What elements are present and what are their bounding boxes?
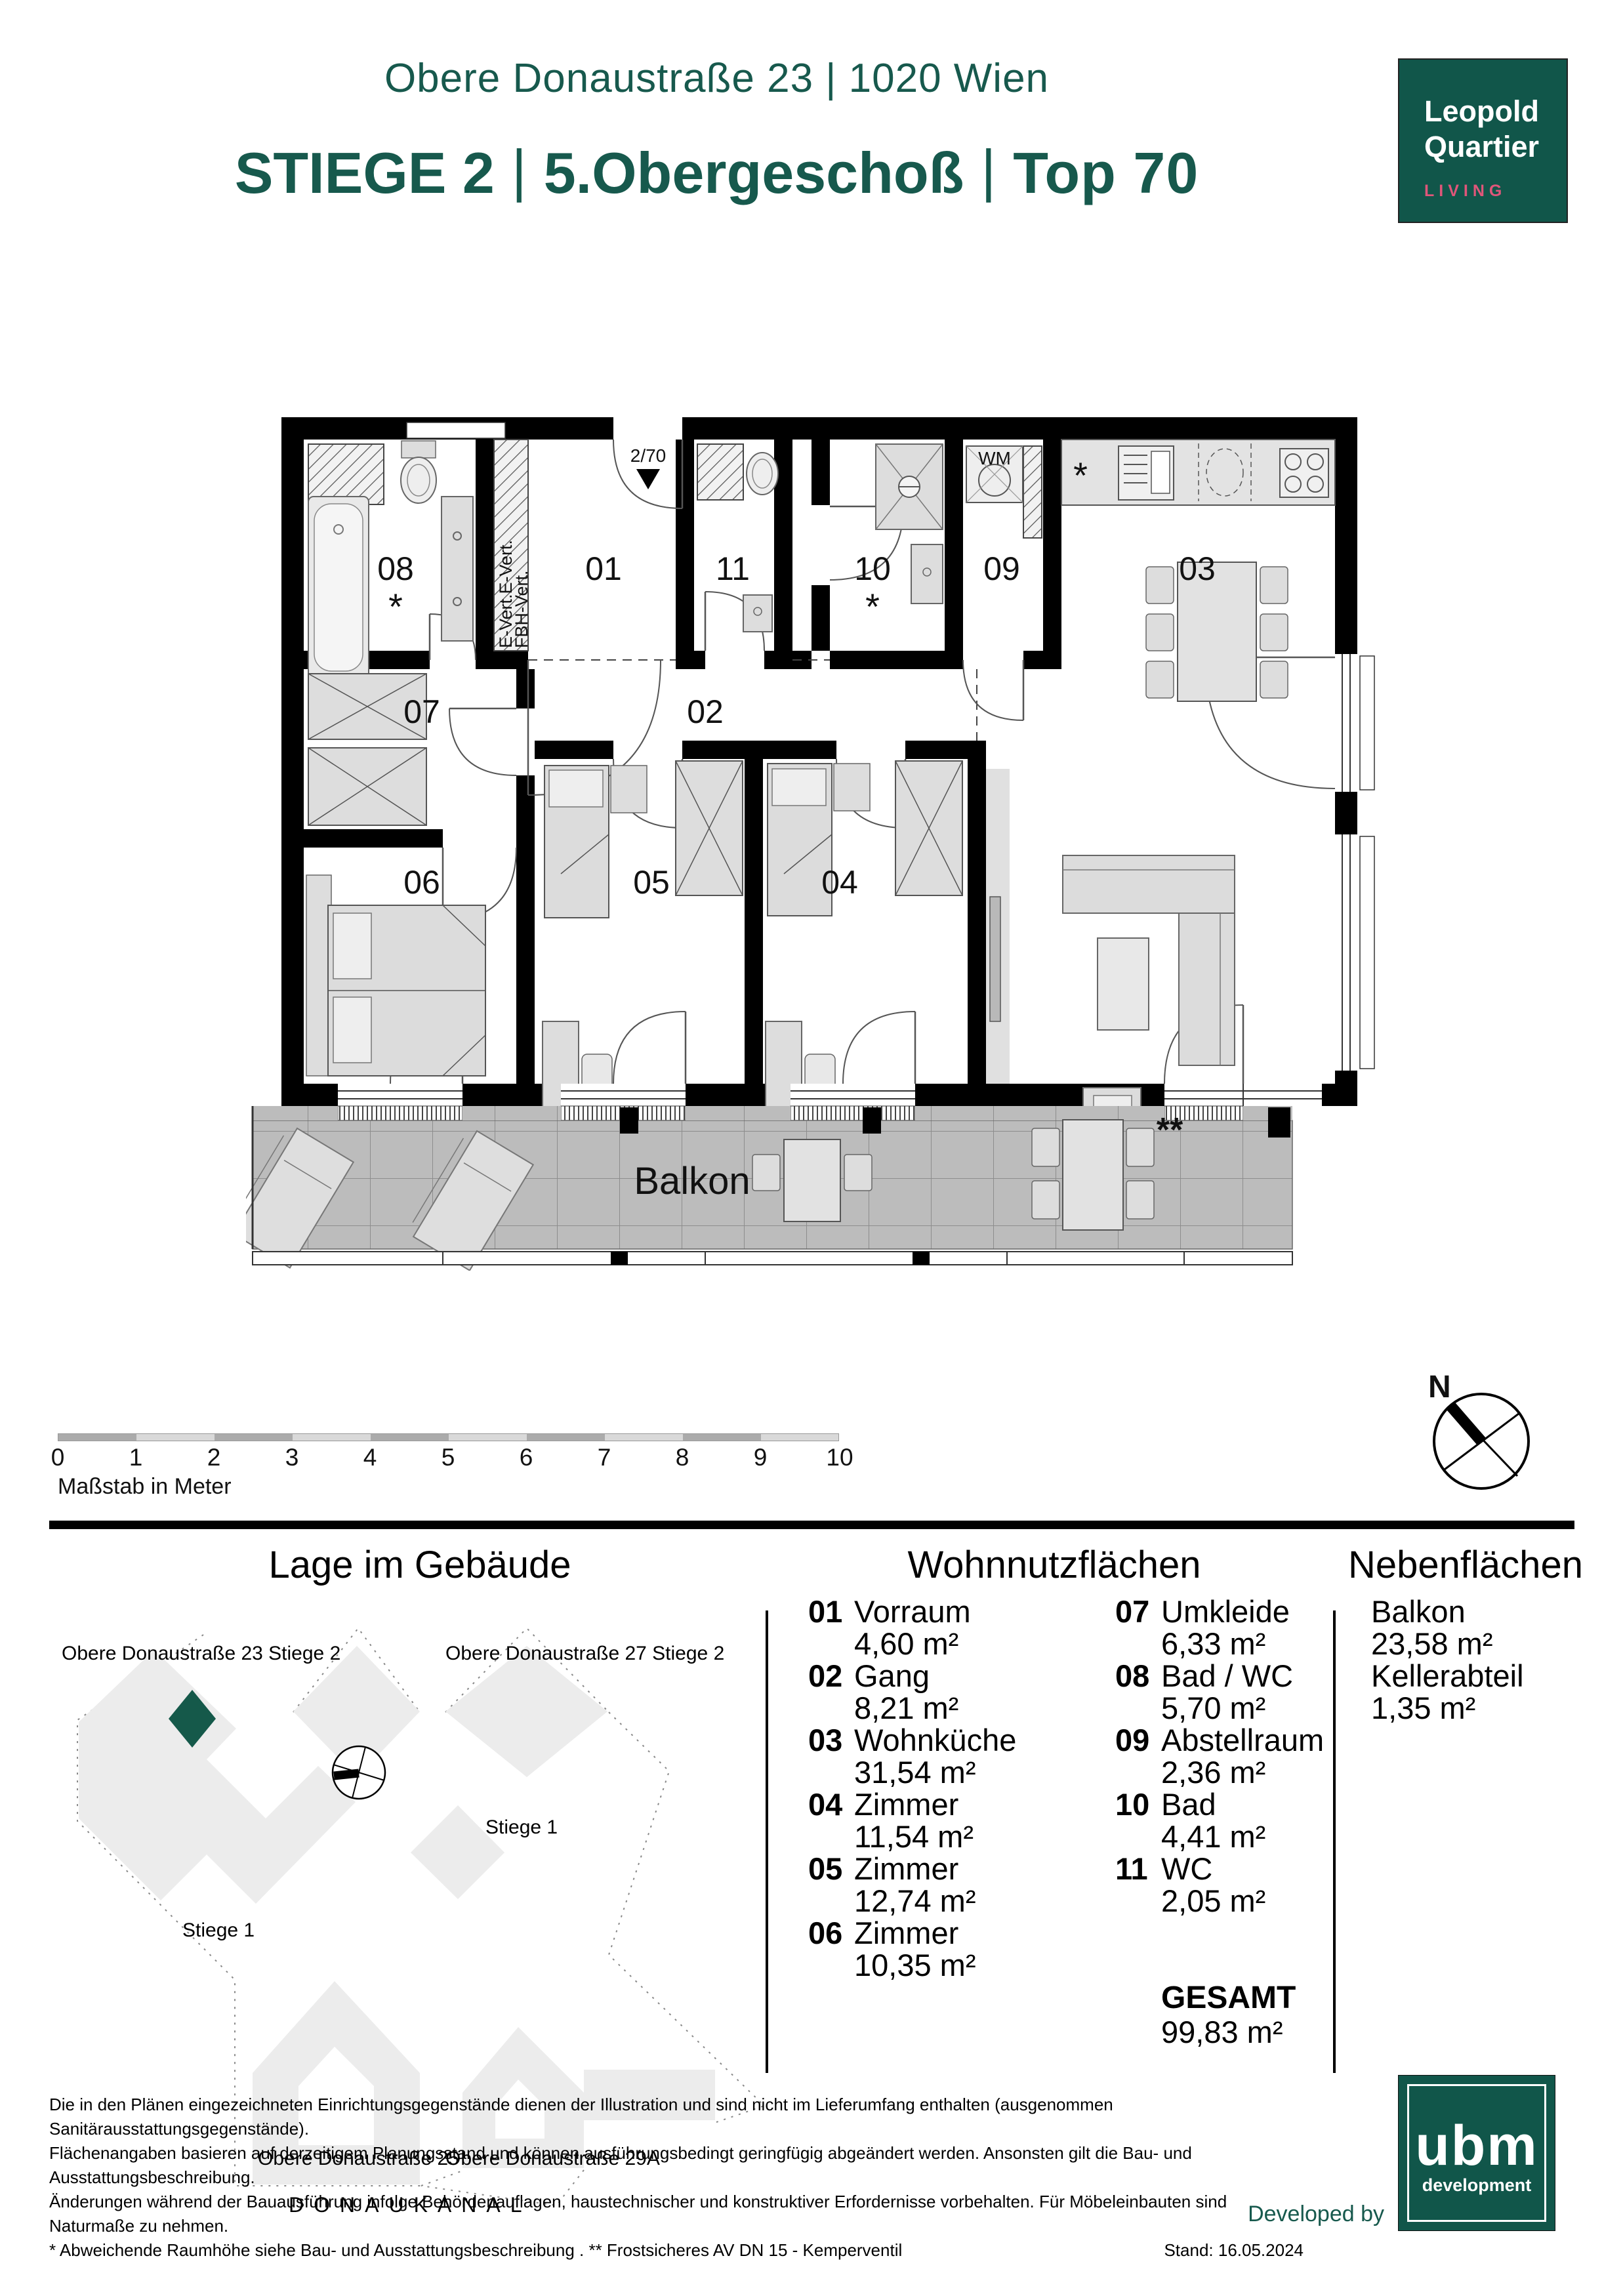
room-num: 11 [1115, 1853, 1161, 1885]
room-area: 5,70 m² [1115, 1692, 1332, 1724]
site-title: Lage im Gebäude [131, 1543, 709, 1587]
column-divider [1333, 1610, 1336, 2073]
room-num: 07 [1115, 1595, 1161, 1628]
room-num: 06 [808, 1917, 854, 1949]
room-name: Wohnküche [854, 1724, 1016, 1756]
total-value: 99,83 m² [1161, 2015, 1296, 2049]
site-label-stiege1-left: Stiege 1 [182, 1919, 255, 1941]
disclaimer-line4: * Abweichende Raumhöhe siehe Bau- und Au… [49, 2238, 902, 2263]
scale-label: Maßstab in Meter [58, 1474, 232, 1500]
room-name: Vorraum [854, 1595, 971, 1628]
site-label-23: Obere Donaustraße 23 Stiege 2 [62, 1643, 340, 1664]
balcony-label: Balkon [634, 1160, 750, 1202]
balcony-table [784, 1139, 840, 1221]
double-star-marker: ** [1157, 1111, 1183, 1149]
toilet-cistern [401, 441, 436, 458]
room-num: 09 [1115, 1724, 1161, 1756]
room-num: 04 [808, 1788, 854, 1820]
room-label-05: 05 [633, 864, 670, 901]
scale-tick: 6 [512, 1444, 541, 1471]
room-area: 12,74 m² [808, 1885, 1084, 1917]
room-label-02: 02 [687, 693, 724, 730]
opening-dashes [528, 660, 977, 741]
room-label-04: 04 [821, 864, 858, 901]
areas-column-2: 07Umkleide 6,33 m² 08Bad / WC 5,70 m² 09… [1115, 1595, 1332, 1917]
areas-column-1: 01Vorraum 4,60 m² 02Gang 8,21 m² 03Wohnk… [808, 1595, 1084, 1981]
room-06-furniture [306, 875, 485, 1076]
room-num: 03 [808, 1724, 854, 1756]
room-area: 10,35 m² [808, 1949, 1084, 1981]
coffee-table [1098, 938, 1149, 1030]
areas-title: Wohnnutzflächen [787, 1543, 1321, 1587]
room-area: 4,60 m² [808, 1628, 1084, 1660]
room-label-11: 11 [716, 550, 750, 587]
room-area: 4,41 m² [1115, 1820, 1332, 1853]
disclaimer-line3: Änderungen während der Bauausführung inf… [49, 2190, 1304, 2238]
brand-line2: Quartier [1424, 129, 1567, 165]
kitchen-counter: * [1061, 440, 1335, 505]
scale-tick: 2 [199, 1444, 228, 1471]
wall-niche [407, 422, 505, 438]
disclaimer-line2: Flächenangaben basieren auf derzeitigem … [49, 2141, 1304, 2190]
leopold-quartier-logo: Leopold Quartier LIVING [1398, 58, 1568, 223]
disclaimer: Die in den Plänen eingezeichneten Einric… [49, 2093, 1304, 2263]
room-area: 31,54 m² [808, 1756, 1084, 1788]
developed-by-label: Developed by [1181, 2202, 1384, 2227]
room-name: Bad [1161, 1788, 1216, 1820]
brand-line1: Leopold [1424, 94, 1567, 129]
balcony: Balkon ** [246, 1106, 1292, 1271]
north-compass: N [1397, 1351, 1574, 1535]
separator: | [964, 138, 1013, 203]
north-label: N [1428, 1370, 1451, 1404]
top-number-label: Top 70 [1013, 140, 1199, 205]
room-area: 6,33 m² [1115, 1628, 1332, 1660]
building-23 [79, 1650, 356, 1904]
room-05-furniture [543, 761, 743, 1134]
scale-tick: 0 [43, 1444, 72, 1471]
balcony-table [1063, 1120, 1123, 1230]
secondary-areas: Balkon 23,58 m² Kellerabteil 1,35 m² [1371, 1595, 1594, 1724]
building-27 [445, 1646, 607, 1777]
ubm-sub: development [1409, 2175, 1544, 2196]
nightstand [834, 764, 870, 811]
room-label-03: 03 [1179, 550, 1216, 587]
entrance-number: 2/70 [630, 445, 667, 466]
site-compass [333, 1746, 385, 1799]
sofa [1063, 855, 1235, 913]
scale-tick: 10 [825, 1444, 854, 1471]
room-name: Zimmer [854, 1917, 958, 1949]
room-label-08: 08 [377, 550, 414, 587]
scale-tick: 7 [590, 1444, 619, 1471]
kitchen-star: * [1073, 455, 1088, 496]
room-area: 2,36 m² [1115, 1756, 1332, 1788]
total-area: GESAMT 99,83 m² [1161, 1981, 1296, 2049]
wm-label: WM [978, 448, 1011, 468]
unit-title: STIEGE 2|5.Obergeschoß|Top 70 [0, 140, 1433, 207]
ubm-logo: ubm development [1398, 2075, 1555, 2231]
shaft-hatch [697, 444, 743, 500]
room-04-furniture [766, 761, 962, 1134]
secondary-name: Balkon [1371, 1595, 1594, 1628]
room-name: WC [1161, 1853, 1212, 1885]
room-label-06: 06 [403, 864, 440, 901]
entrance-arrow-icon [636, 469, 660, 489]
room-num: 02 [808, 1660, 854, 1692]
secondary-name: Kellerabteil [1371, 1660, 1594, 1692]
scale-tick: 3 [277, 1444, 306, 1471]
room-label-10: 10 [854, 550, 891, 587]
floor-label: 5.Obergeschoß [544, 140, 964, 205]
entrance-door: 2/70 [613, 440, 682, 508]
room-num: 05 [808, 1853, 854, 1885]
address-title: Obere Donaustraße 23 | 1020 Wien [0, 55, 1433, 102]
room-label-01: 01 [585, 550, 622, 587]
room-name: Umkleide [1161, 1595, 1290, 1628]
room-area: 11,54 m² [808, 1820, 1084, 1853]
room-label-09: 09 [983, 550, 1020, 587]
room-star-10: * [865, 586, 880, 627]
disclaimer-line1: Die in den Plänen eingezeichneten Einric… [49, 2093, 1304, 2141]
wc-11-fixtures [743, 453, 778, 632]
secondary-title: Nebenflächen [1334, 1543, 1597, 1587]
washbasin [911, 544, 943, 604]
scale-tick: 5 [434, 1444, 462, 1471]
room-name: Zimmer [854, 1853, 958, 1885]
installation-shaft: E-Vert.E-Vert. FBH-Vert. [494, 440, 531, 651]
shaft-label-2: FBH-Vert. [512, 570, 531, 648]
secondary-area: 23,58 m² [1371, 1628, 1594, 1660]
floorplan-sheet: Obere Donaustraße 23 | 1020 Wien STIEGE … [0, 0, 1623, 2296]
shaft-hatch [308, 444, 384, 504]
scale-tick: 4 [356, 1444, 384, 1471]
separator: | [495, 138, 544, 203]
scale-bar: 0 1 2 3 4 5 6 7 8 9 10 Maßstab in Meter [58, 1433, 871, 1506]
vanity [442, 497, 473, 641]
site-label-stiege1-right: Stiege 1 [485, 1816, 558, 1838]
room-star-08: * [388, 586, 403, 627]
room-name: Gang [854, 1660, 930, 1692]
compass-needle-icon [1451, 1406, 1481, 1441]
floor-plan: E-Vert.E-Vert. FBH-Vert. 2/70 [246, 375, 1381, 1271]
plan-date: Stand: 16.05.2024 [1164, 2238, 1304, 2263]
room-name: Abstellraum [1161, 1724, 1324, 1756]
room-label-07: 07 [403, 693, 440, 730]
tv [990, 897, 1000, 1021]
room-num: 01 [808, 1595, 854, 1628]
room-name: Bad / WC [1161, 1660, 1293, 1692]
storage-09-fixtures: WM [966, 446, 1023, 502]
room-area: 2,05 m² [1115, 1885, 1332, 1917]
washbasin [743, 595, 772, 632]
stiege-label: STIEGE 2 [235, 140, 495, 205]
room-name: Zimmer [854, 1788, 958, 1820]
ubm-name: ubm [1409, 2118, 1544, 2174]
room-num: 08 [1115, 1660, 1161, 1692]
scale-tick: 8 [668, 1444, 697, 1471]
scale-tick: 1 [121, 1444, 150, 1471]
section-divider [49, 1521, 1574, 1529]
shaft-hatch [1023, 446, 1042, 538]
scale-tick: 9 [746, 1444, 775, 1471]
nightstand [611, 766, 647, 813]
total-label: GESAMT [1161, 1981, 1296, 2015]
secondary-area: 1,35 m² [1371, 1692, 1594, 1724]
dining-set [1146, 562, 1288, 701]
right-wall-windows [1335, 654, 1374, 1071]
room-area: 8,21 m² [808, 1692, 1084, 1724]
site-label-27: Obere Donaustraße 27 Stiege 2 [445, 1643, 724, 1664]
brand-living-label: LIVING [1424, 182, 1567, 201]
room-num: 10 [1115, 1788, 1161, 1820]
